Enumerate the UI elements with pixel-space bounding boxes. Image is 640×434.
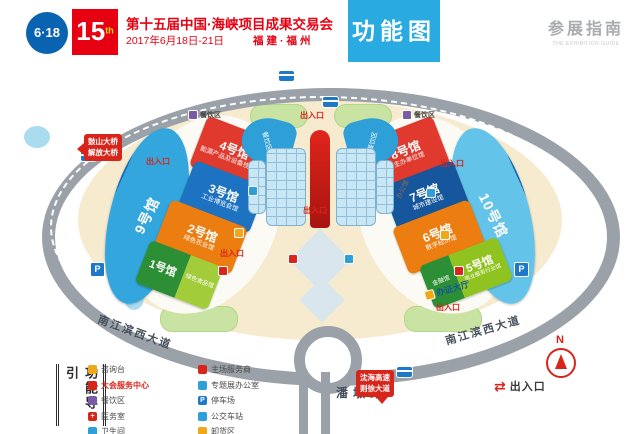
medical-icon: + — [88, 412, 97, 421]
guide-wordmark: 参展指南 THE EXHIBITION GUIDE — [540, 15, 632, 47]
highway-direction-sign: 沈海高速 则徐大道 — [356, 370, 394, 397]
event-title: 第十五届中国·海峡项目成果交易会 — [126, 13, 333, 33]
theme-office-icon — [198, 381, 207, 390]
main-building-east-block — [336, 148, 376, 226]
restroom-icon — [88, 427, 97, 434]
info-desk-icon — [440, 230, 450, 240]
dining-area-label: 餐饮区 — [414, 110, 435, 120]
parking-icon: P — [514, 262, 529, 277]
dining-icon — [188, 110, 198, 120]
main-building-west-block — [266, 148, 306, 226]
main-building-east-annex — [376, 160, 394, 214]
bus-stop-icon — [322, 96, 339, 108]
legend-item-info-desk: 咨询台 — [88, 364, 149, 375]
legend-item-bus-stop: 公交车站 — [198, 411, 259, 422]
bridge-sign-line1: 鼓山大桥 — [88, 137, 118, 148]
bus-stop-icon — [396, 366, 413, 378]
exit-label: 出入口 — [510, 378, 546, 394]
15th-anniversary-badge: 15th — [72, 9, 118, 55]
medical-icon — [454, 266, 464, 276]
exhibition-function-map: 6·18 15th 第十五届中国·海峡项目成果交易会 2017年6月18日-21… — [0, 0, 640, 434]
legend-item-venue-services: 主场服务商 — [198, 364, 259, 375]
hall-1-subtitle: 绿色食品馆 — [184, 274, 215, 291]
dining-icon — [402, 110, 412, 120]
bus-stop-icon — [278, 70, 295, 82]
restroom-icon — [248, 186, 258, 196]
unloading-icon — [198, 427, 207, 434]
exit-arrows-icon: ⇄ — [494, 379, 506, 393]
highway-sign-line2: 则徐大道 — [360, 384, 390, 395]
entrance-north: 出入口 — [300, 110, 324, 121]
dining-area-label: 餐饮区 — [200, 110, 221, 120]
legend-item-theme-office: 专题展办公室 — [198, 380, 259, 391]
legend-item-unloading: 卸货区 — [198, 426, 259, 434]
compass-icon — [546, 348, 576, 378]
event-date: 2017年6月18日-21日 — [126, 35, 224, 47]
legend-column-2: 主场服务商 专题展办公室 P 停车场 公交车站 卸货区 — [198, 364, 259, 434]
service-center-icon — [288, 254, 298, 264]
legend-item-service-center: 大会服务中心 — [88, 380, 149, 391]
guide-title-en: THE EXHIBITION GUIDE — [540, 41, 632, 47]
north-label: N — [550, 334, 570, 346]
entrance-center-south: 出入口 — [303, 205, 327, 216]
highway-sign-line1: 沈海高速 — [360, 373, 390, 384]
medical-icon — [218, 266, 228, 276]
bridge-direction-sign: 鼓山大桥 解放大桥 — [84, 134, 122, 161]
618-logo: 6·18 — [26, 12, 68, 54]
exit-legend: ⇄ 出入口 — [494, 378, 546, 394]
pond — [24, 126, 50, 148]
parking-icon: P — [198, 396, 207, 405]
badge-hall-icon — [424, 289, 436, 301]
hall-9-label: 9号馆 — [132, 195, 163, 237]
dining-area-tag-east: 餐饮区 — [402, 110, 435, 120]
venue-services-icon — [198, 365, 207, 374]
entrance-east-inner: 出入口 — [436, 302, 460, 313]
legend-item-dining: 餐饮区 — [88, 395, 149, 406]
legend-item-parking: P 停车场 — [198, 395, 259, 406]
restroom-icon — [344, 254, 354, 264]
entrance-east: 出入口 — [440, 158, 464, 169]
page-title: 功能图 — [348, 0, 440, 62]
bus-stop-icon — [198, 412, 207, 421]
entrance-west: 出入口 — [146, 156, 170, 167]
info-desk-icon — [234, 228, 244, 238]
service-center-icon — [88, 381, 97, 390]
south-road — [299, 372, 308, 434]
restroom-icon — [426, 188, 436, 198]
south-road — [321, 372, 330, 434]
legend-column-1: 咨询台 大会服务中心 餐饮区 + 医务室 卫生间 — [88, 364, 149, 434]
guide-title-cn: 参展指南 — [540, 15, 632, 39]
badge-number: 15 — [76, 16, 105, 46]
event-place: 福建·福州 — [253, 35, 314, 47]
info-desk-icon — [88, 365, 97, 374]
parking-icon: P — [90, 262, 105, 277]
badge-suffix: th — [105, 26, 114, 36]
dining-icon — [88, 396, 97, 405]
event-date-row: 2017年6月18日-21日 福建·福州 — [126, 33, 313, 48]
entrance-west-inner: 出入口 — [220, 248, 244, 259]
legend-item-medical: + 医务室 — [88, 411, 149, 422]
dining-area-tag-west: 餐饮区 — [188, 110, 221, 120]
hall-1-label: 1号馆 — [147, 258, 178, 279]
legend-item-restroom: 卫生间 — [88, 426, 149, 434]
bridge-sign-line2: 解放大桥 — [88, 148, 118, 159]
